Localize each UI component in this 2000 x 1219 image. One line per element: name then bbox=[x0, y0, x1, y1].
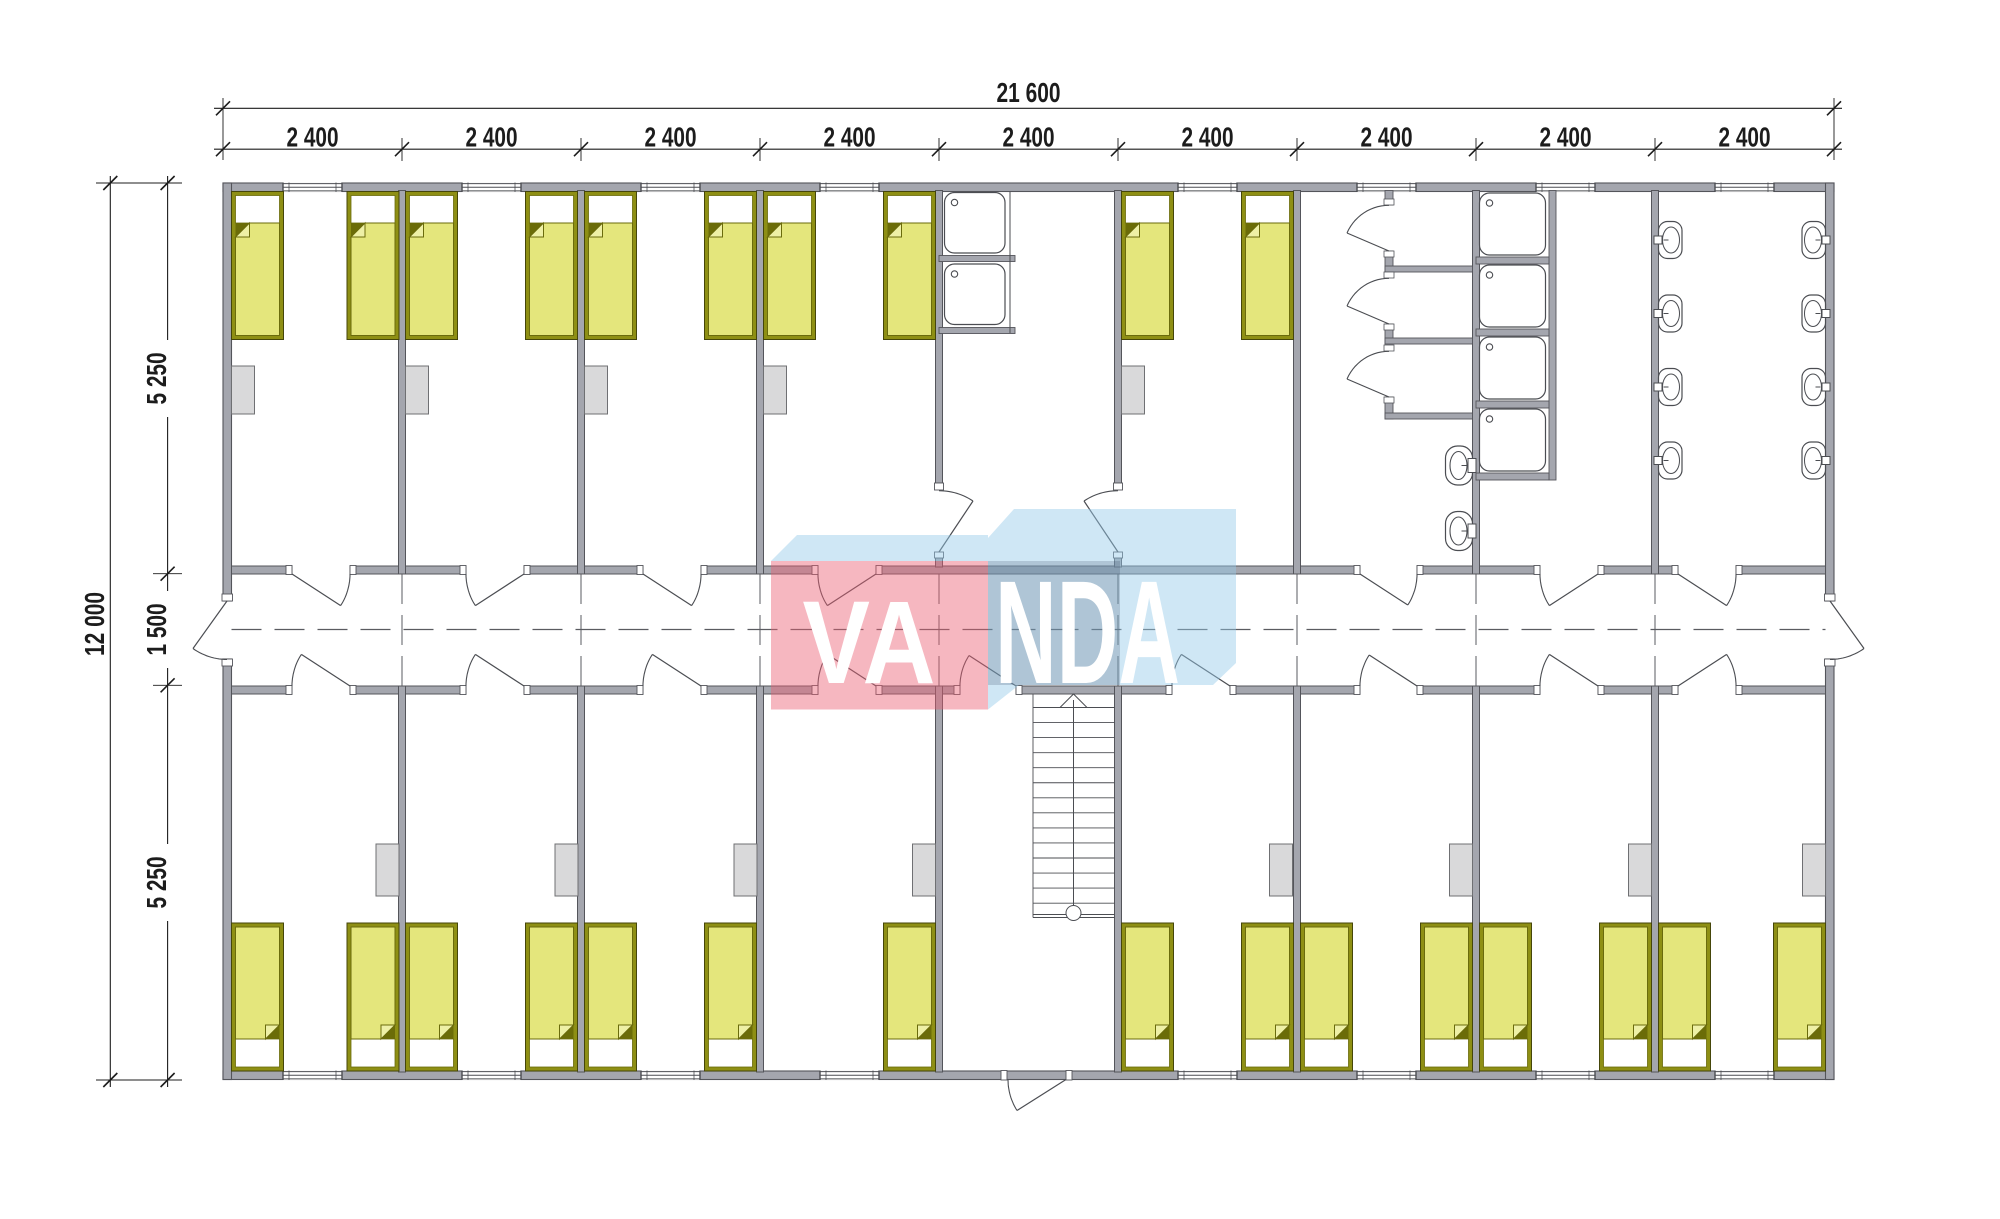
svg-text:2 400: 2 400 bbox=[824, 121, 876, 152]
svg-text:2 400: 2 400 bbox=[1182, 121, 1234, 152]
svg-text:1 500: 1 500 bbox=[141, 604, 172, 656]
svg-text:2 400: 2 400 bbox=[645, 121, 697, 152]
svg-text:2 400: 2 400 bbox=[1719, 121, 1771, 152]
svg-text:NDA: NDA bbox=[995, 551, 1180, 715]
svg-text:5 250: 5 250 bbox=[141, 353, 172, 405]
svg-text:12 000: 12 000 bbox=[79, 592, 110, 656]
svg-text:2 400: 2 400 bbox=[287, 121, 339, 152]
svg-text:2 400: 2 400 bbox=[1540, 121, 1592, 152]
svg-text:2 400: 2 400 bbox=[466, 121, 518, 152]
svg-text:2 400: 2 400 bbox=[1003, 121, 1055, 152]
svg-text:VA: VA bbox=[803, 577, 936, 709]
svg-text:5 250: 5 250 bbox=[141, 857, 172, 909]
svg-text:2 400: 2 400 bbox=[1361, 121, 1413, 152]
svg-text:21 600: 21 600 bbox=[997, 77, 1061, 108]
